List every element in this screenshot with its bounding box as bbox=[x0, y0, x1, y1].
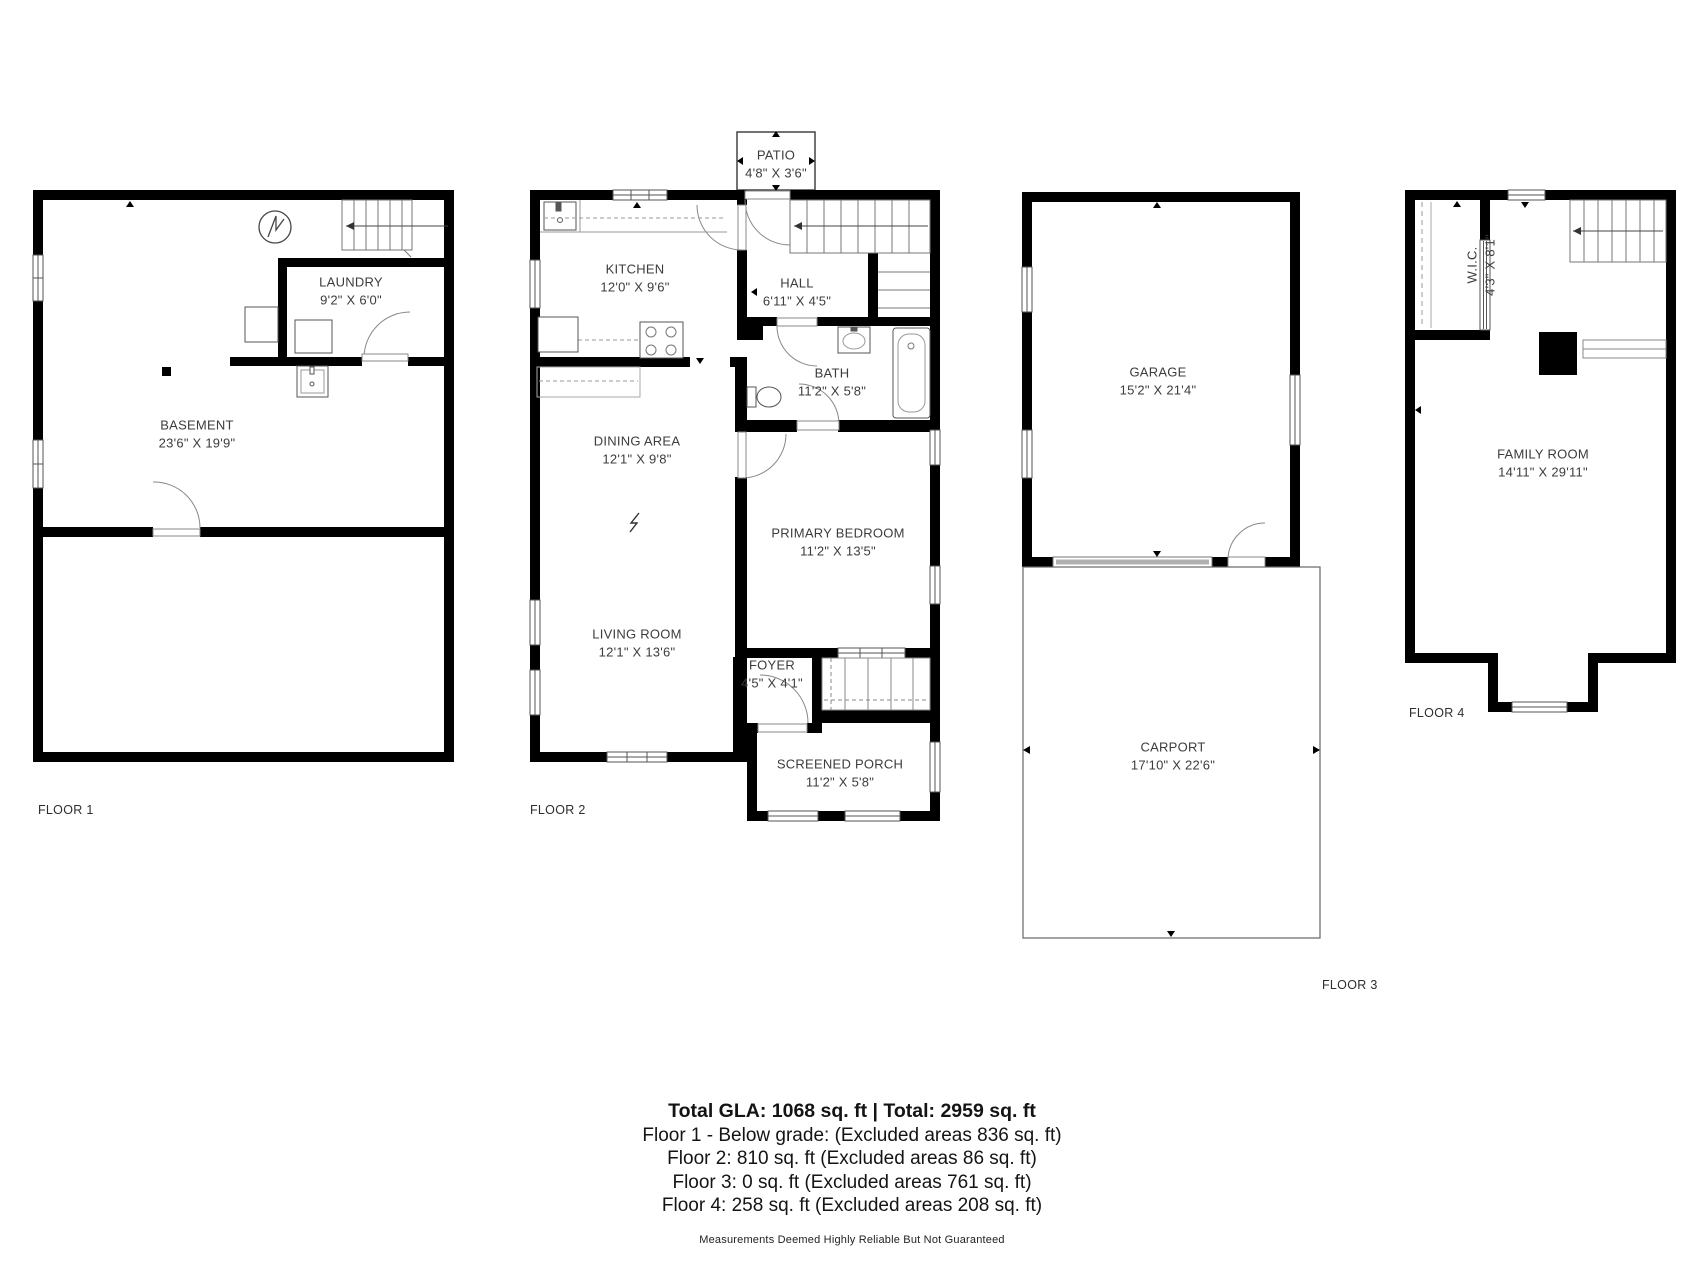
electrical-panel-icon bbox=[259, 211, 291, 243]
bathtub-icon bbox=[893, 328, 930, 418]
shelf-niche bbox=[1583, 340, 1666, 358]
room-dims: 4'3" X 8'1" bbox=[1481, 234, 1499, 296]
room-dims: 11'2" X 5'8" bbox=[798, 382, 866, 400]
room-dims: 14'11" X 29'11" bbox=[1497, 463, 1589, 481]
room-name: LIVING ROOM bbox=[592, 626, 681, 644]
room-dims: 12'1" X 9'8" bbox=[594, 450, 681, 468]
carport-markers bbox=[1023, 746, 1320, 937]
room-name: HALL bbox=[763, 275, 831, 293]
room-dims: 12'1" X 13'6" bbox=[592, 643, 681, 661]
room-name: FAMILY ROOM bbox=[1497, 446, 1589, 464]
room-label-primary-bedroom: PRIMARY BEDROOM 11'2" X 13'5" bbox=[771, 525, 904, 560]
disclaimer-text: Measurements Deemed Highly Reliable But … bbox=[642, 1229, 1061, 1253]
bolt-symbol bbox=[630, 513, 639, 532]
floor-drain bbox=[162, 367, 171, 376]
room-label-foyer: FOYER 4'5" X 4'1" bbox=[741, 657, 803, 692]
floor1-plan bbox=[33, 190, 454, 762]
room-label-hall: HALL 6'11" X 4'5" bbox=[763, 275, 831, 310]
room-name: FOYER bbox=[741, 657, 803, 675]
room-label-garage: GARAGE 15'2" X 21'4" bbox=[1120, 364, 1197, 399]
floor3-label: FLOOR 3 bbox=[1322, 978, 1378, 992]
summary-line-floor3: Floor 3: 0 sq. ft (Excluded areas 761 sq… bbox=[642, 1171, 1061, 1195]
room-name: W.I.C. bbox=[1464, 234, 1482, 296]
total-gla-line: Total GLA: 1068 sq. ft | Total: 2959 sq.… bbox=[642, 1100, 1061, 1124]
room-label-patio: PATIO 4'8" X 3'6" bbox=[745, 147, 807, 182]
kitchen-sink-icon bbox=[544, 202, 576, 230]
room-dims: 23'6" X 19'9" bbox=[159, 434, 236, 452]
floor2-label: FLOOR 2 bbox=[530, 803, 586, 817]
stairs-arrow bbox=[346, 222, 354, 230]
floor2-plan bbox=[530, 131, 940, 821]
closet-rod-icon bbox=[1422, 202, 1431, 328]
floor1-stairs-icon bbox=[342, 200, 448, 257]
floor-plan-page: BASEMENT 23'6" X 19'9" LAUNDRY 9'2" X 6'… bbox=[0, 0, 1706, 1280]
kitchen-cabinet bbox=[538, 317, 578, 352]
floor4-label: FLOOR 4 bbox=[1409, 706, 1465, 720]
summary-line-floor4: Floor 4: 258 sq. ft (Excluded areas 208 … bbox=[642, 1194, 1061, 1218]
room-dims: 12'0" X 9'6" bbox=[600, 278, 669, 296]
room-name: GARAGE bbox=[1120, 364, 1197, 382]
floor3-plan bbox=[1022, 192, 1320, 938]
room-name: CARPORT bbox=[1131, 739, 1215, 757]
room-label-wic: W.I.C. 4'3" X 8'1" bbox=[1464, 234, 1499, 296]
room-dims: 11'2" X 13'5" bbox=[771, 542, 904, 560]
bath-sink-icon bbox=[838, 327, 870, 353]
stairs-arrow bbox=[1573, 227, 1581, 235]
room-name: SCREENED PORCH bbox=[777, 756, 903, 774]
room-name: DINING AREA bbox=[594, 433, 681, 451]
toilet-icon bbox=[747, 387, 781, 407]
room-dims: 9'2" X 6'0" bbox=[319, 291, 383, 309]
washer-icon bbox=[295, 320, 332, 353]
floor1-walls bbox=[33, 190, 454, 762]
room-dims: 17'10" X 22'6" bbox=[1131, 756, 1215, 774]
area-summary: Total GLA: 1068 sq. ft | Total: 2959 sq.… bbox=[642, 1100, 1061, 1252]
floor2-walls bbox=[530, 190, 940, 821]
stove-icon bbox=[640, 322, 683, 358]
summary-line-floor1: Floor 1 - Below grade: (Excluded areas 8… bbox=[642, 1124, 1061, 1148]
room-name: KITCHEN bbox=[600, 261, 669, 279]
room-dims: 6'11" X 4'5" bbox=[763, 292, 831, 310]
room-label-living-room: LIVING ROOM 12'1" X 13'6" bbox=[592, 626, 681, 661]
room-label-bath: BATH 11'2" X 5'8" bbox=[798, 365, 866, 400]
room-dims: 4'8" X 3'6" bbox=[745, 164, 807, 182]
room-dims: 4'5" X 4'1" bbox=[741, 674, 803, 692]
room-name: PATIO bbox=[745, 147, 807, 165]
summary-line-floor2: Floor 2: 810 sq. ft (Excluded areas 86 s… bbox=[642, 1147, 1061, 1171]
room-label-laundry: LAUNDRY 9'2" X 6'0" bbox=[319, 274, 383, 309]
utility-sink-icon bbox=[297, 366, 328, 397]
room-label-carport: CARPORT 17'10" X 22'6" bbox=[1131, 739, 1215, 774]
floor1-label: FLOOR 1 bbox=[38, 803, 94, 817]
room-name: LAUNDRY bbox=[319, 274, 383, 292]
room-label-kitchen: KITCHEN 12'0" X 9'6" bbox=[600, 261, 669, 296]
room-label-screened-porch: SCREENED PORCH 11'2" X 5'8" bbox=[777, 756, 903, 791]
room-label-dining-area: DINING AREA 12'1" X 9'8" bbox=[594, 433, 681, 468]
opening-marker bbox=[126, 201, 134, 207]
room-label-family-room: FAMILY ROOM 14'11" X 29'11" bbox=[1497, 446, 1589, 481]
water-heater-icon bbox=[245, 307, 278, 342]
room-name: BASEMENT bbox=[159, 417, 236, 435]
floor-plans-drawing bbox=[0, 0, 1706, 1280]
chimney-block bbox=[1539, 332, 1577, 375]
room-label-basement: BASEMENT 23'6" X 19'9" bbox=[159, 417, 236, 452]
garage-door-icon bbox=[1053, 557, 1212, 567]
room-dims: 11'2" X 5'8" bbox=[777, 773, 903, 791]
garage-person-door bbox=[1228, 523, 1265, 567]
deck-steps bbox=[822, 658, 930, 710]
floor4-stairs-icon bbox=[1570, 200, 1666, 262]
room-name: PRIMARY BEDROOM bbox=[771, 525, 904, 543]
room-dims: 15'2" X 21'4" bbox=[1120, 381, 1197, 399]
stairs-arrow bbox=[794, 222, 802, 230]
room-name: BATH bbox=[798, 365, 866, 383]
